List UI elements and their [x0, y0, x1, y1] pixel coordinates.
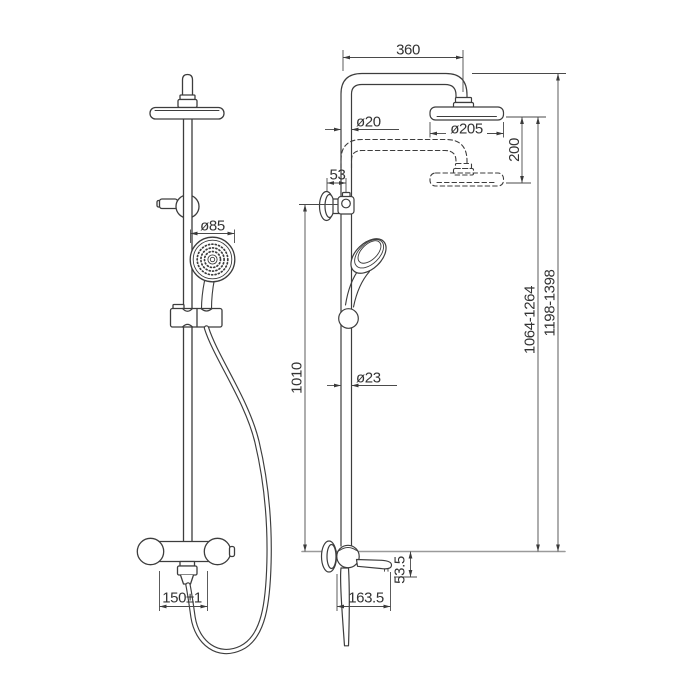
dim-head-range-label: 1064-1264	[522, 286, 539, 354]
dim-total-range-label: 1198-1398	[542, 269, 559, 336]
dim-spout-height-label: 53.5	[392, 556, 409, 584]
front-handshower-face	[190, 237, 235, 282]
side-slider-ball	[339, 309, 359, 329]
dim-wall-offset-label: 53	[330, 167, 346, 184]
front-overhead-shower	[150, 108, 224, 120]
dim-bracket-height-label: 1010	[289, 362, 306, 394]
dim-handshower-diameter-label: ø85	[200, 218, 225, 235]
dim-inlet-spacing-label: 150±1	[162, 590, 202, 607]
front-mixer-left-handle	[137, 538, 163, 564]
dim-pipe-diameter-label: ø20	[356, 114, 381, 131]
technical-drawing-canvas: 360 ø20 ø205 200 53 ø85 1010 ø23 1064-12…	[0, 0, 700, 700]
front-riser-rail	[184, 118, 193, 542]
shower-system-drawing: 360 ø20 ø205 200 53 ø85 1010 ø23 1064-12…	[0, 0, 700, 700]
dim-head-diameter-label: ø205	[450, 121, 483, 138]
front-mixer-right-handle	[204, 538, 230, 564]
dim-rail-diameter-label: ø23	[356, 370, 381, 387]
dim-top-width-label: 360	[396, 42, 420, 59]
dim-spout-reach-label: 163.5	[348, 590, 384, 607]
dim-height-adjustment-label: 200	[506, 138, 523, 162]
front-slider-block	[171, 305, 223, 328]
